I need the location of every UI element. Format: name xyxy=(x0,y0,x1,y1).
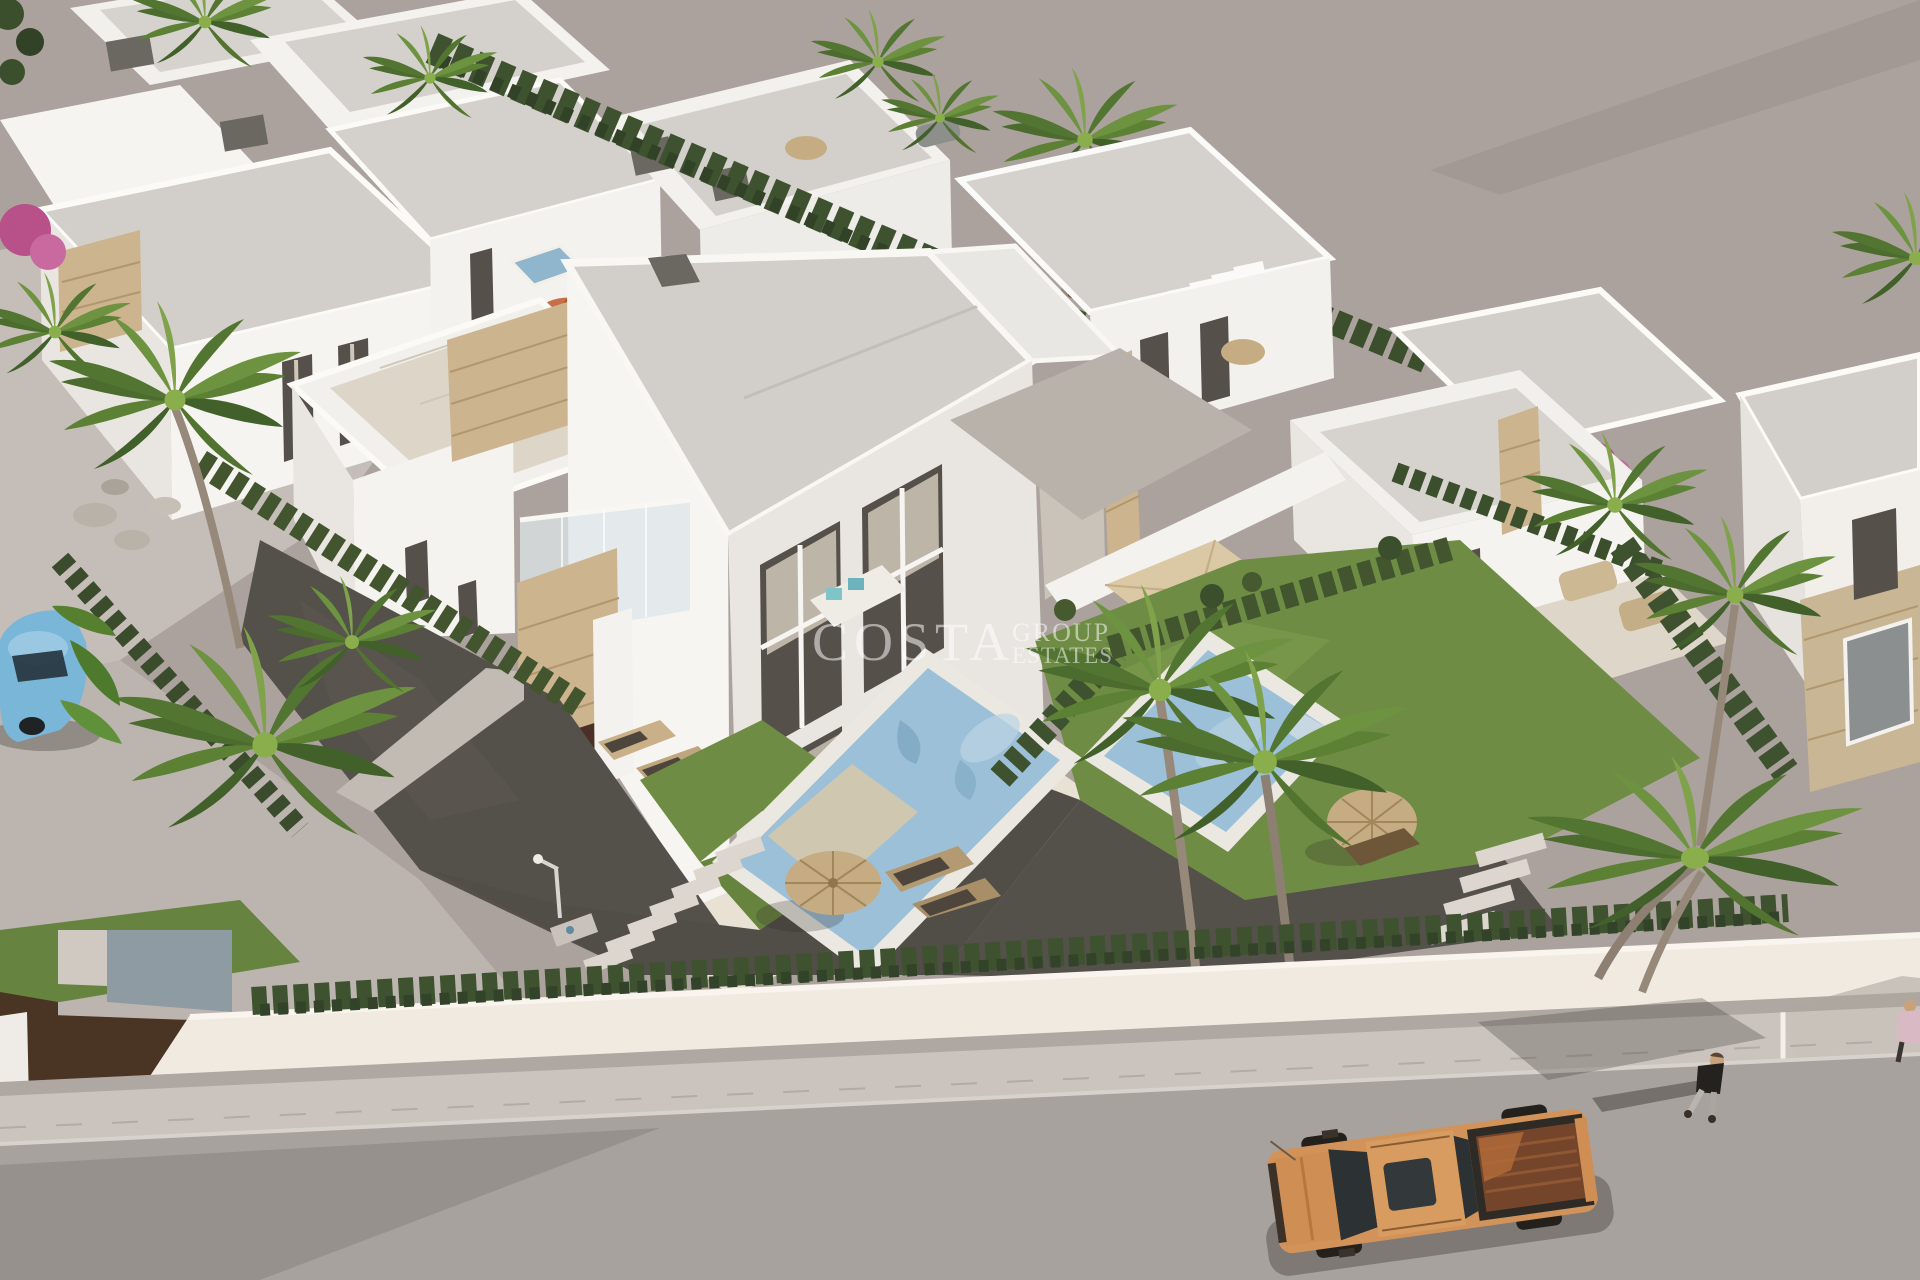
scene-canvas: COSTA GROUP ESTATES xyxy=(0,0,1920,1280)
thatch-umbrella-small xyxy=(1221,339,1265,365)
shuttered-window xyxy=(1845,620,1912,744)
parked-blue-car xyxy=(0,606,122,751)
path-left xyxy=(58,930,107,986)
watermark-estates: ESTATES xyxy=(1012,643,1113,668)
sunroof xyxy=(1383,1157,1437,1211)
render-image: COSTA GROUP ESTATES xyxy=(0,0,1920,1280)
window xyxy=(1852,508,1898,600)
window xyxy=(1200,316,1230,404)
watermark-costa: COSTA xyxy=(812,612,1015,672)
car-wheel xyxy=(19,717,45,735)
watermark: COSTA GROUP ESTATES xyxy=(812,612,1113,672)
thatch-umbrella-small xyxy=(785,136,827,160)
driveway-left xyxy=(107,930,232,1012)
leg xyxy=(1712,1092,1714,1116)
